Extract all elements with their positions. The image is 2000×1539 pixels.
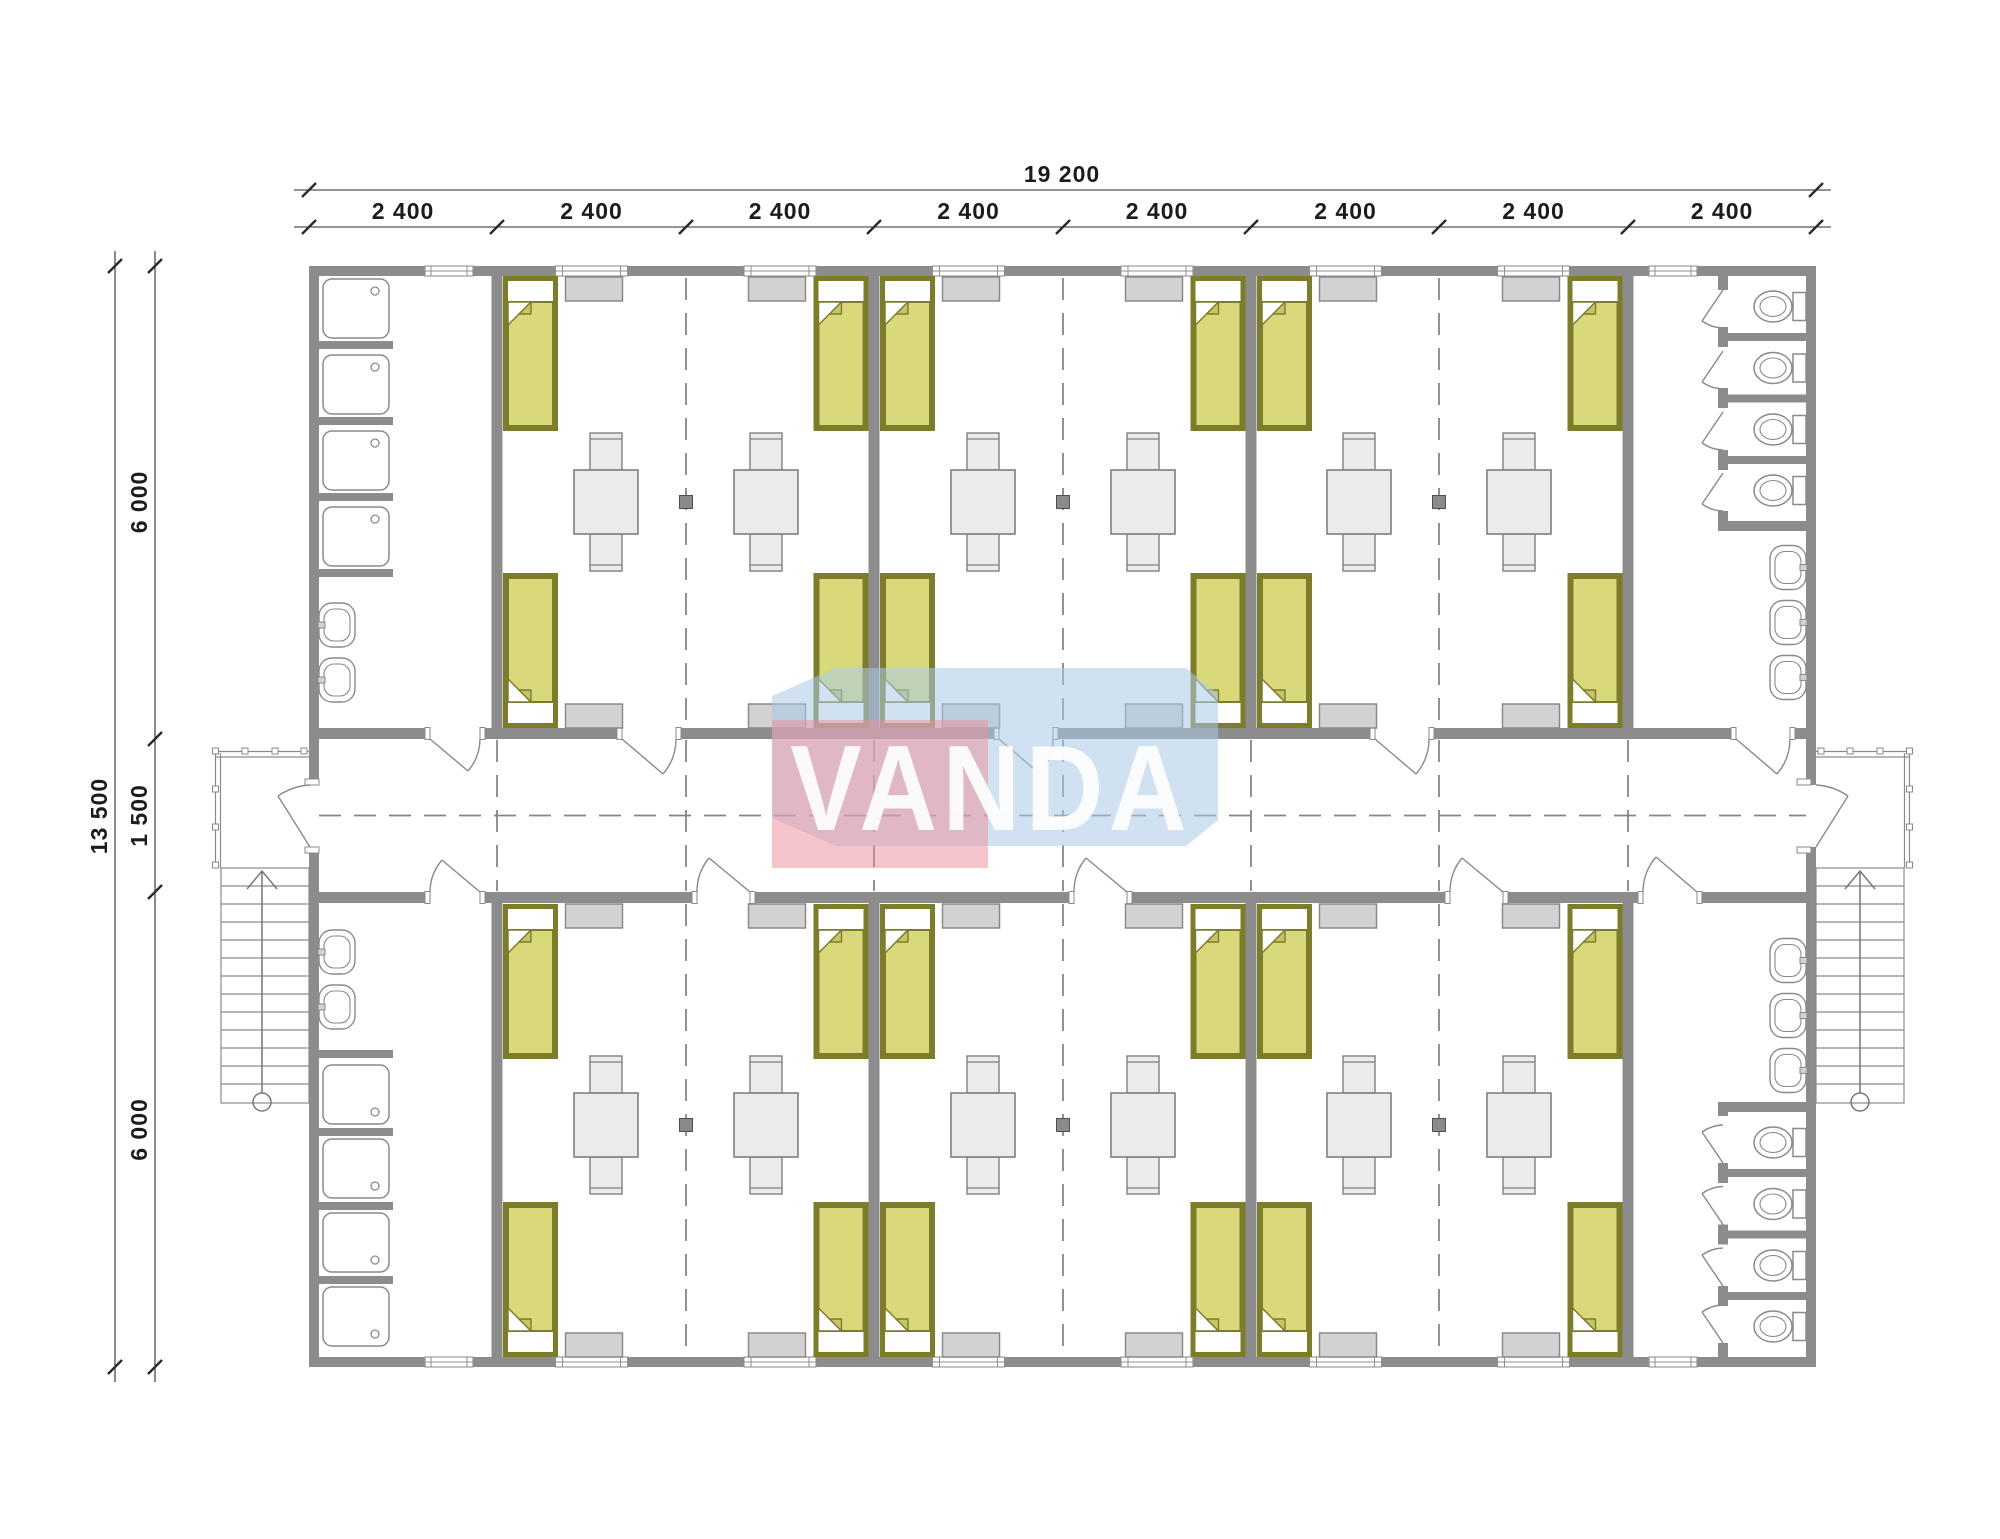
wardrobe-icon (943, 904, 1000, 928)
shower-tray-icon (323, 279, 389, 338)
module-joint-marker (680, 496, 693, 509)
dim-label-module: 2 400 (937, 198, 1000, 224)
door-swing (1375, 739, 1429, 774)
bed-icon (1570, 279, 1620, 429)
dim-label-module: 2 400 (372, 198, 435, 224)
bed-icon (1570, 576, 1620, 726)
window-icon (556, 266, 628, 276)
staircase-right (1816, 748, 1913, 1111)
module-joint-marker (1057, 496, 1070, 509)
dim-label-total-width: 19 200 (1024, 161, 1100, 187)
table-chairs-icon (574, 1056, 638, 1194)
dim-label-module: 2 400 (749, 198, 812, 224)
wash-basin-icon (1770, 656, 1807, 700)
wc-room-bottom-right (1702, 939, 1807, 1344)
watermark: VANDA (772, 668, 1218, 868)
window-icon (1121, 266, 1193, 276)
entry-door-swing (278, 785, 310, 847)
wash-basin-icon (318, 985, 355, 1029)
dim-label-module: 2 400 (560, 198, 623, 224)
window-icon (1498, 1357, 1570, 1367)
bed-icon (1260, 279, 1310, 429)
stair-flight (221, 868, 309, 1103)
toilet-icon (1754, 1311, 1806, 1342)
wardrobe-icon (1503, 904, 1560, 928)
wall-partition (1623, 892, 1634, 1367)
window-icon (425, 1357, 473, 1367)
wardrobe-icon (566, 277, 623, 301)
wc-room-top-right (1702, 290, 1807, 700)
bed-icon (1260, 576, 1310, 726)
window-icon (744, 1357, 816, 1367)
window-icon (933, 266, 1005, 276)
bed-icon (1570, 1205, 1620, 1355)
window-icon (933, 1357, 1005, 1367)
bed-icon (883, 279, 933, 429)
wardrobe-icon (1320, 1333, 1377, 1357)
toilet-icon (1754, 353, 1806, 384)
window-icon (425, 266, 473, 276)
watermark-text: VANDA (790, 720, 1192, 856)
wardrobe-icon (1503, 704, 1560, 728)
window-icon (1121, 1357, 1193, 1367)
table-chairs-icon (1327, 1056, 1391, 1194)
wall-corridor-bottom (309, 892, 1816, 903)
wall-partition (1623, 266, 1634, 739)
window-icon (1498, 266, 1570, 276)
window-icon (1310, 1357, 1382, 1367)
shower-tray-icon (323, 1065, 389, 1124)
wash-basin-icon (318, 658, 355, 702)
dim-label-total-depth: 13 500 (86, 778, 112, 854)
wardrobe-icon (1126, 904, 1183, 928)
wall-partition (492, 266, 503, 739)
table-chairs-icon (734, 1056, 798, 1194)
bed-icon (1260, 907, 1310, 1057)
wardrobe-icon (1320, 277, 1377, 301)
table-chairs-icon (574, 433, 638, 571)
floor-plan-canvas: VANDA 19 200 2 400 2 400 2 400 2 400 2 4… (0, 0, 2000, 1539)
wardrobe-icon (749, 277, 806, 301)
table-chairs-icon (951, 433, 1015, 571)
wardrobe-icon (1126, 1333, 1183, 1357)
table-chairs-icon (1111, 1056, 1175, 1194)
wardrobe-icon (749, 1333, 806, 1357)
wall-exterior-top (309, 266, 1816, 276)
bed-icon (1193, 907, 1243, 1057)
wardrobe-icon (943, 1333, 1000, 1357)
window-icon (744, 266, 816, 276)
wardrobe-icon (566, 704, 623, 728)
dim-label-band: 6 000 (126, 471, 152, 534)
module-joint-marker (1057, 1119, 1070, 1132)
table-chairs-icon (734, 433, 798, 571)
door-swing (430, 860, 480, 892)
shower-tray-icon (323, 507, 389, 566)
window-icon (556, 1357, 628, 1367)
table-chairs-icon (951, 1056, 1015, 1194)
wash-basin-icon (1770, 994, 1807, 1038)
door-swing (697, 858, 750, 892)
module-joint-marker (1433, 496, 1446, 509)
shower-tray-icon (323, 1139, 389, 1198)
porch-railing (216, 750, 310, 868)
wall-partition (492, 892, 503, 1367)
table-chairs-icon (1487, 1056, 1551, 1194)
porch-railing (1816, 750, 1910, 868)
dim-label-module: 2 400 (1314, 198, 1377, 224)
shower-tray-icon (323, 355, 389, 414)
shower-tray-icon (323, 431, 389, 490)
dim-label-band: 1 500 (126, 784, 152, 847)
toilet-icon (1754, 475, 1806, 506)
module-joint-marker (680, 1119, 693, 1132)
wall-partition (869, 892, 880, 1367)
dim-label-module: 2 400 (1691, 198, 1754, 224)
wash-basin-icon (1770, 601, 1807, 645)
wardrobe-icon (1320, 704, 1377, 728)
toilet-icon (1754, 1127, 1806, 1158)
wall-exterior-bottom (309, 1357, 1816, 1367)
bed-icon (1193, 1205, 1243, 1355)
wash-basin-icon (318, 930, 355, 974)
toilet-icon (1754, 1189, 1806, 1220)
door-swing (622, 739, 676, 774)
wash-basin-icon (318, 603, 355, 647)
wall-partition (1246, 892, 1257, 1367)
bed-icon (883, 1205, 933, 1355)
module-joint-marker (1433, 1119, 1446, 1132)
toilet-icon (1754, 414, 1806, 445)
shower-tray-icon (323, 1213, 389, 1272)
bed-icon (816, 279, 866, 429)
bed-icon (506, 907, 556, 1057)
entry-door-swing (1816, 785, 1848, 847)
bed-icon (816, 1205, 866, 1355)
window-icon (1649, 1357, 1697, 1367)
wardrobe-icon (566, 904, 623, 928)
toilet-icon (1754, 291, 1806, 322)
bed-icon (816, 907, 866, 1057)
wardrobe-icon (749, 904, 806, 928)
bed-icon (506, 279, 556, 429)
staircase-left (213, 748, 310, 1111)
door-swing (430, 739, 480, 771)
floor-plan-page: VANDA 19 200 2 400 2 400 2 400 2 400 2 4… (0, 0, 2000, 1539)
wardrobe-icon (1503, 277, 1560, 301)
table-chairs-icon (1327, 433, 1391, 571)
dim-label-band: 6 000 (126, 1098, 152, 1161)
bed-icon (506, 1205, 556, 1355)
wash-basin-icon (1770, 546, 1807, 590)
window-icon (1310, 266, 1382, 276)
bed-icon (506, 576, 556, 726)
door-swing (1074, 858, 1127, 892)
table-chairs-icon (1111, 433, 1175, 571)
bed-icon (883, 907, 933, 1057)
wall-partition (1246, 266, 1257, 739)
bed-icon (1193, 279, 1243, 429)
railing-posts (213, 748, 308, 868)
wash-basin-icon (1770, 939, 1807, 983)
toilet-icon (1754, 1250, 1806, 1281)
bed-icon (1570, 907, 1620, 1057)
wash-basin-icon (1770, 1049, 1807, 1093)
window-icon (1649, 266, 1697, 276)
dim-label-module: 2 400 (1502, 198, 1565, 224)
wardrobe-icon (1126, 277, 1183, 301)
bed-icon (1260, 1205, 1310, 1355)
shower-tray-icon (323, 1287, 389, 1346)
railing-posts (1818, 748, 1913, 868)
wardrobe-icon (943, 277, 1000, 301)
wardrobe-icon (566, 1333, 623, 1357)
door-swing (1643, 857, 1697, 892)
dim-label-module: 2 400 (1126, 198, 1189, 224)
wardrobe-icon (1503, 1333, 1560, 1357)
table-chairs-icon (1487, 433, 1551, 571)
wardrobe-icon (1320, 904, 1377, 928)
door-swing (1450, 858, 1503, 892)
door-swing (1736, 739, 1790, 774)
